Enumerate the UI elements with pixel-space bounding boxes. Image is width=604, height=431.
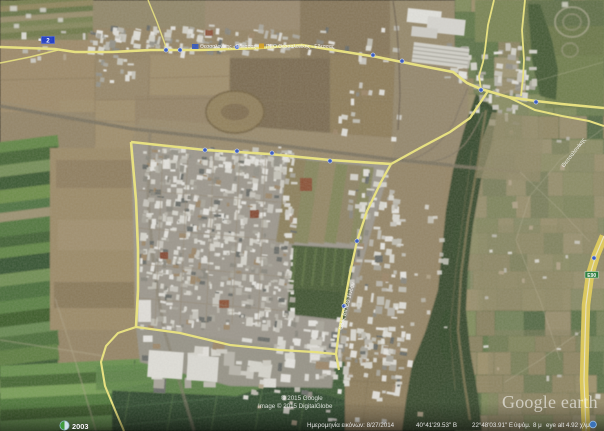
svg-text:eye alt: eye alt [546, 422, 565, 429]
svg-text:ύψόμ.: ύψόμ. [514, 422, 531, 429]
svg-text:22°48'03.91" E: 22°48'03.91" E [472, 422, 513, 429]
svg-text:2003: 2003 [72, 422, 88, 431]
svg-text:Google earth: Google earth [502, 392, 598, 412]
svg-text:Image © 2015 DigitalGlobe: Image © 2015 DigitalGlobe [258, 403, 333, 410]
svg-text:© 2015 Google: © 2015 Google [281, 395, 323, 402]
svg-text:8 μ: 8 μ [533, 422, 542, 429]
svg-text:40°41'29.53" B: 40°41'29.53" B [416, 422, 457, 429]
svg-text:4.92 χλμ: 4.92 χλμ [566, 422, 590, 429]
svg-text:Ημερομηνία εικόνων: 8/27/2014: Ημερομηνία εικόνων: 8/27/2014 [307, 422, 395, 429]
